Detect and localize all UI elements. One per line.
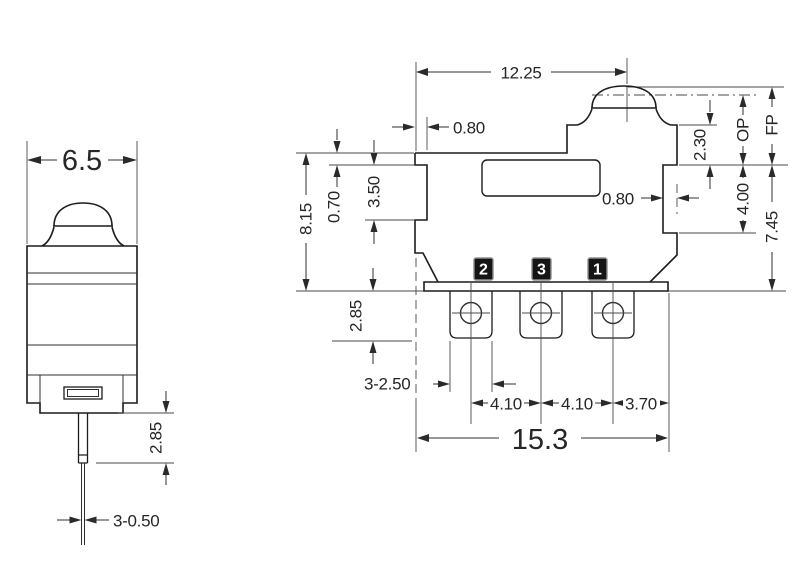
dim-terminal-pitch-left: 4.10: [471, 395, 541, 414]
arrowhead-bottom: [371, 220, 378, 232]
arrowhead-left: [471, 400, 483, 407]
plunger-dome-side: [42, 203, 124, 246]
technical-drawing-page: 6.5 2.85 3-0.50: [0, 0, 800, 581]
arrowhead-left: [403, 124, 415, 131]
dim-terminal-pitch-left-label: 4.10: [490, 395, 522, 414]
dim-overall-width: 15.3: [417, 424, 668, 456]
front-view: 2 3 1 12.25 0.80: [296, 58, 788, 456]
arrowhead-bottom: [769, 153, 776, 165]
arrowhead-top: [740, 165, 747, 177]
dim-fp: FP: [763, 87, 782, 165]
arrowhead-left: [541, 400, 553, 407]
arrowhead-bottom: [740, 221, 747, 233]
badge-1-label: 1: [593, 262, 602, 279]
arrowhead-left: [27, 156, 41, 164]
side-wire: [82, 463, 85, 545]
arrowhead-left: [417, 434, 429, 442]
dim-terminal-width: 3-2.50: [364, 375, 516, 394]
arrowhead-bottom: [769, 279, 776, 291]
dim-terminal-pitch-right: 4.10: [541, 395, 613, 414]
dim-top-left-step-label: 0.80: [453, 119, 485, 138]
dim-body-height-right-label: 7.45: [763, 211, 782, 243]
dim-plunger-offset: 12.25: [416, 64, 627, 83]
arrowhead-bottom: [303, 279, 310, 291]
dim-terminal-right-offset-label: 3.70: [625, 395, 657, 414]
arrowhead-top: [163, 401, 170, 413]
arrowhead-bottom: [334, 165, 341, 177]
arrowhead-left: [651, 195, 663, 202]
dim-plunger-offset-label: 12.25: [500, 64, 541, 83]
dim-side-wire-width: 3-0.50: [57, 512, 159, 531]
arrowhead-right: [529, 400, 541, 407]
dim-terminal-pitch-right-label: 4.10: [561, 395, 593, 414]
fp-label: FP: [763, 114, 782, 135]
op-label: OP: [734, 118, 753, 142]
arrowhead-top: [303, 153, 310, 165]
arrowhead-bottom: [370, 341, 377, 353]
dim-plunger-height: 2.30: [691, 100, 714, 189]
dome-skirt-left: [42, 227, 54, 246]
dim-terminal-right-offset: 3.70: [613, 395, 669, 414]
dim-right-step-height-label: 4.00: [734, 183, 753, 215]
dim-right-recess: 0.80: [602, 190, 699, 209]
side-slot-outer: [64, 387, 102, 399]
micro-switch-dimension-drawing: 6.5 2.85 3-0.50: [0, 0, 800, 581]
arrowhead-top: [769, 87, 776, 99]
dim-left-notch: 0.70: [325, 129, 344, 223]
arrowhead-top: [707, 113, 714, 125]
dim-plunger-height-label: 2.30: [691, 129, 710, 161]
badge-3-label: 3: [537, 262, 546, 279]
side-pin: [79, 413, 88, 463]
dim-terminal-height-label: 2.85: [347, 300, 366, 332]
arrowhead-top: [334, 141, 341, 153]
side-body-lines: [27, 273, 137, 403]
side-slot-inner: [68, 390, 99, 397]
dome-skirt-right: [112, 227, 124, 246]
arrowhead-left: [70, 517, 82, 524]
dim-left-mid-label: 3.50: [365, 176, 384, 208]
dim-top-left-step: 0.80: [392, 117, 485, 150]
arrowhead-top: [370, 279, 377, 291]
dim-side-wire-width-label: 3-0.50: [113, 512, 159, 531]
dim-side-width: 6.5: [27, 141, 137, 244]
badge-terminal-2: 2: [474, 258, 493, 280]
dim-left-mid: 3.50: [365, 140, 384, 244]
arrowhead-top: [740, 95, 747, 107]
badge-terminal-3: 3: [532, 258, 551, 280]
front-body-upper-outline: [415, 86, 677, 282]
side-body-outline: [27, 246, 137, 413]
dim-left-notch-label: 0.70: [325, 191, 344, 223]
arrowhead-right: [85, 517, 97, 524]
arrowhead-right: [656, 434, 668, 442]
front-body-left-profile: [415, 153, 438, 282]
arrowhead-top: [371, 153, 378, 165]
dim-right-recess-label: 0.80: [602, 190, 634, 209]
dim-terminal-height: 2.85: [347, 268, 377, 364]
arrowhead-right: [427, 124, 439, 131]
dim-side-width-label: 6.5: [62, 145, 102, 177]
arrowhead-right: [123, 156, 137, 164]
arrowhead-bottom: [740, 153, 747, 165]
arrowhead-right: [601, 400, 613, 407]
badge-terminal-1: 1: [588, 258, 607, 280]
arrowhead-bottom: [707, 165, 714, 177]
dim-body-height-right: 7.45: [763, 165, 782, 291]
arrowhead-right: [492, 381, 504, 388]
dim-side-pin-length: 2.85: [96, 391, 174, 485]
dim-body-height-left-label: 8.15: [297, 203, 316, 235]
arrowhead-left: [438, 381, 450, 388]
dim-overall-width-label: 15.3: [512, 424, 568, 456]
side-view: 6.5 2.85 3-0.50: [27, 141, 174, 545]
arrowhead-bottom: [163, 463, 170, 475]
dim-right-step-height: 4.00: [734, 165, 753, 233]
dim-op: OP: [734, 95, 753, 165]
arrowhead-left: [416, 68, 428, 76]
arrowhead-right: [615, 68, 627, 76]
dim-terminal-width-label: 3-2.50: [364, 375, 410, 394]
label-plate: [482, 160, 600, 196]
badge-2-label: 2: [479, 262, 488, 279]
arrowhead-right: [677, 195, 689, 202]
dome-cap: [54, 203, 112, 226]
arrowhead-top: [769, 165, 776, 177]
dim-body-height-left: 8.15: [297, 153, 316, 291]
front-base-plate: [424, 282, 668, 291]
dim-side-pin-length-label: 2.85: [147, 422, 166, 454]
terminal-badges: 2 3 1: [474, 258, 607, 280]
